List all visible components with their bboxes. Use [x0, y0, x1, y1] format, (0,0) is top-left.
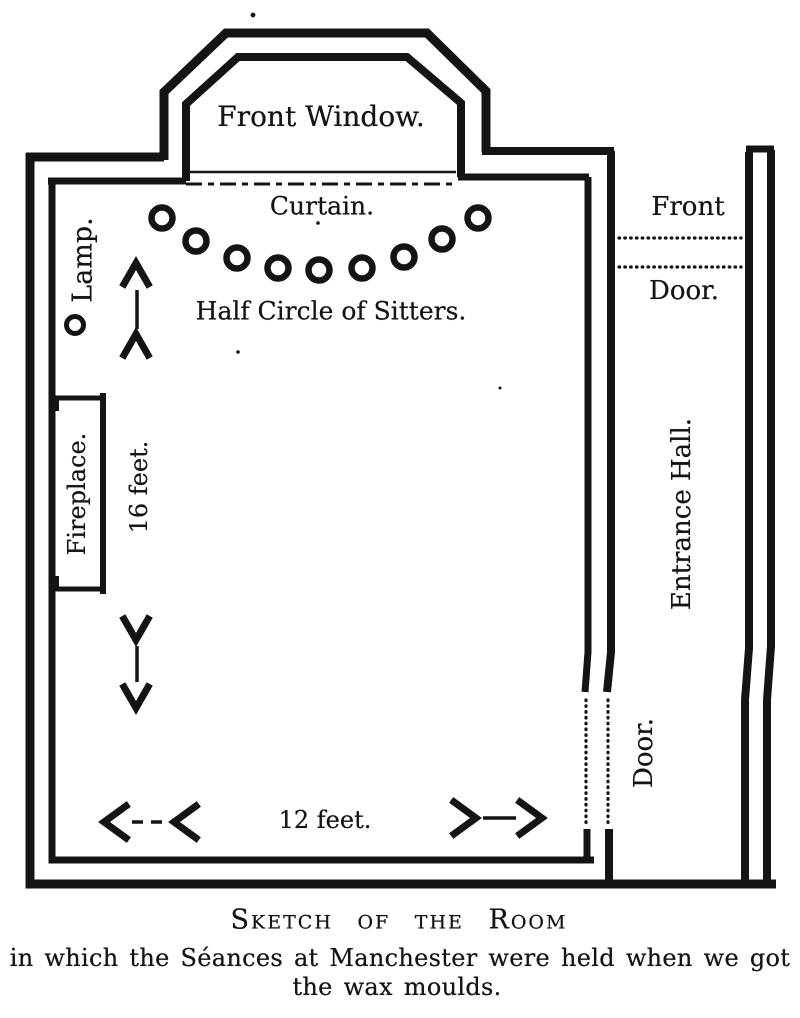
half-circle-of-sitters-label: Half Circle of Sitters.: [196, 299, 467, 324]
sitter-circle-icon: [352, 258, 373, 279]
sitter-circle-icon: [227, 248, 248, 269]
down-arrow-icon: [124, 687, 148, 708]
sitter-circle-icon: [268, 258, 289, 279]
sitter-circle-icon: [468, 208, 489, 229]
right-arrow-icon: [454, 802, 476, 834]
hall-wall-inner-line: [745, 152, 749, 880]
lamp-circle-icon: [67, 317, 84, 334]
front-door-label-top: Front: [651, 194, 724, 220]
fireplace-label: Fireplace.: [65, 433, 89, 556]
up-arrow-icon: [124, 334, 148, 355]
sitter-circle-icon: [432, 229, 453, 250]
entrance-hall-label: Entrance Hall.: [669, 418, 695, 610]
front-window-label: Front Window.: [217, 103, 424, 131]
caption-line-1: in which the Séances at Manchester were …: [10, 946, 791, 970]
right-wall-inner-upper: [585, 177, 588, 692]
room-door-label: Door.: [631, 718, 657, 788]
sitter-circle-icon: [309, 260, 330, 281]
front-door-label-bottom: Door.: [649, 278, 719, 304]
lamp-label: Lamp.: [70, 217, 97, 303]
room-width-label: 12 feet.: [279, 808, 372, 832]
right-wall-outer-upper: [607, 151, 611, 692]
hall-wall-outer-line: [767, 150, 771, 882]
scanned-page: Front Window. Curtain. Half Circle of Si…: [0, 0, 800, 1018]
dimension-arrows: [104, 263, 542, 838]
room-length-label: 16 feet.: [127, 441, 151, 534]
sitter-circle-icon: [186, 231, 207, 252]
right-arrow-icon: [520, 802, 542, 834]
curtain-lines: [183, 172, 456, 184]
caption-line-2: the wax moulds.: [292, 975, 501, 999]
sitter-circle-icon: [152, 208, 173, 229]
curtain-label: Curtain.: [270, 194, 374, 219]
left-arrow-icon: [174, 806, 196, 838]
sitter-circle-icon: [394, 247, 415, 268]
lamp-circle-icon: [67, 317, 84, 334]
left-arrow-icon: [104, 806, 126, 838]
down-arrow-icon: [124, 619, 148, 640]
caption-title: Sketch of the Room: [231, 907, 568, 934]
up-arrow-icon: [124, 263, 148, 284]
bay-window-outer: [164, 33, 486, 160]
